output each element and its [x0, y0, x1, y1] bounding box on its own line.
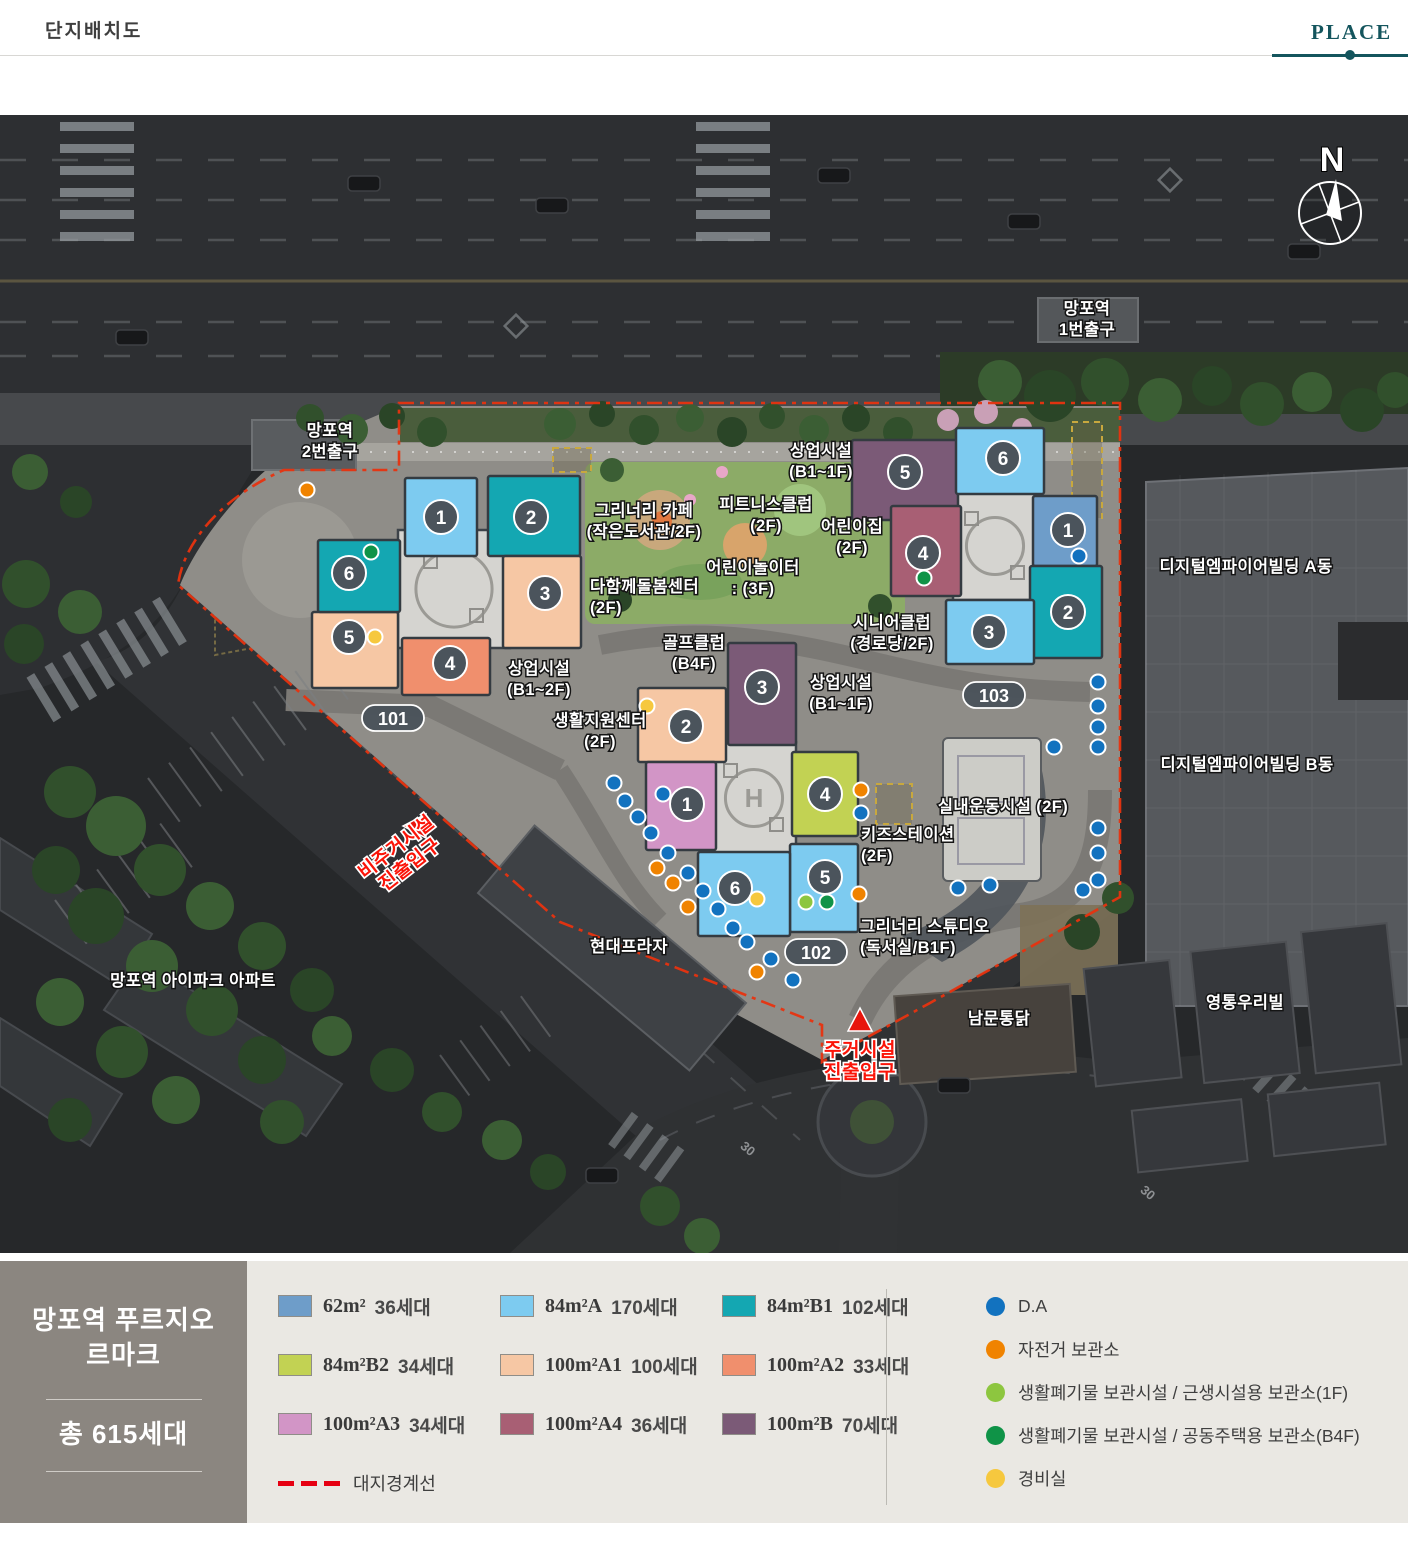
tree	[1081, 358, 1129, 406]
building-badge-label: 102	[801, 943, 831, 963]
unit-type-legend-item: 62m²36세대	[278, 1294, 431, 1318]
unit-type-count: 100세대	[631, 1352, 698, 1379]
tree	[134, 844, 186, 896]
site-plan-map: H 123456321456564123 101102103 망포역2번출구망포…	[0, 115, 1408, 1253]
unit-type-size: 100m²A1	[545, 1354, 622, 1377]
map-label: 실내운동시설 (2F)	[938, 797, 1068, 816]
tree	[799, 415, 829, 445]
tree	[370, 1048, 414, 1092]
boundary-dash	[324, 1481, 340, 1486]
unit-type-count: 102세대	[842, 1293, 909, 1320]
unit-number: 5	[344, 628, 355, 649]
unit-number: 1	[1063, 521, 1074, 542]
header-accent-dot	[1345, 50, 1355, 60]
facility-dot-y	[368, 630, 383, 645]
car	[938, 1078, 970, 1093]
facility-dot-b	[696, 884, 711, 899]
tree	[530, 1154, 566, 1190]
facility-dot-b	[764, 952, 779, 967]
marker-legend-item: 경비실	[986, 1467, 1066, 1489]
tree	[417, 417, 447, 447]
unit-number: 4	[820, 785, 831, 806]
tree	[422, 1092, 462, 1132]
facility-dot-b	[1091, 846, 1106, 861]
car	[1008, 214, 1040, 229]
facility-dot-dg	[364, 545, 379, 560]
marker-label: 자전거 보관소	[1018, 1337, 1119, 1362]
unit-number: 1	[682, 795, 693, 816]
facility-dot-b	[1072, 549, 1087, 564]
facility-dot-b	[607, 776, 622, 791]
boundary-legend-item: 대지경계선	[278, 1473, 436, 1493]
marker-legend-item: D.A	[986, 1295, 1047, 1317]
facility-dot-b	[786, 973, 801, 988]
unit-number: 3	[540, 584, 551, 605]
unit-number: 2	[1063, 603, 1074, 624]
tree	[48, 1098, 92, 1142]
page-title: 단지배치도	[45, 16, 142, 43]
unit-type-legend-item: 100m²A1100세대	[500, 1353, 698, 1377]
tab-place[interactable]: PLACE	[1311, 20, 1392, 45]
marker-label: 경비실	[1018, 1466, 1066, 1491]
unit-type-swatch	[278, 1354, 312, 1376]
top-road	[0, 115, 1408, 393]
tree	[1138, 378, 1182, 422]
map-label: 디지털엠파이어빌딩 A동	[1159, 557, 1332, 576]
facility-dot-o	[681, 900, 696, 915]
tree	[640, 1186, 680, 1226]
facility-dot-y	[750, 892, 765, 907]
unit-type-count: 34세대	[398, 1352, 454, 1379]
boundary-dash	[301, 1481, 317, 1486]
project-total-units: 총 615세대	[0, 1414, 247, 1451]
map-label: 디지털엠파이어빌딩 B동	[1160, 755, 1333, 774]
tree	[68, 888, 124, 944]
tree	[684, 1218, 720, 1253]
unit-type-legend-item: 84m²B1102세대	[722, 1294, 909, 1318]
tree	[2, 560, 50, 608]
unit-type-size: 100m²A2	[767, 1354, 844, 1377]
unit-type-count: 36세대	[375, 1293, 431, 1320]
tree	[238, 1036, 286, 1084]
tree	[759, 403, 785, 429]
facility-dot-b	[1091, 873, 1106, 888]
unit-type-swatch	[500, 1295, 534, 1317]
facility-dot-b	[644, 826, 659, 841]
unit-number: 4	[445, 654, 456, 675]
facility-dot-b	[656, 787, 671, 802]
tree	[544, 408, 576, 440]
marker-label: D.A	[1018, 1296, 1047, 1317]
tree	[12, 454, 48, 490]
unit-number: 5	[900, 463, 911, 484]
unit-type-size: 84m²B1	[767, 1295, 833, 1318]
facility-dot-b	[661, 846, 676, 861]
facility-dot-b	[740, 935, 755, 950]
car	[586, 1168, 618, 1183]
unit-number: 6	[730, 879, 741, 900]
tree	[842, 404, 870, 432]
marker-dot-icon	[986, 1469, 1005, 1488]
facility-dot-o	[666, 876, 681, 891]
building-badge-label: 101	[378, 709, 408, 729]
helipad-h: H	[745, 783, 764, 813]
tree	[978, 360, 1022, 404]
unit-type-swatch	[722, 1354, 756, 1376]
unit-number: 4	[918, 544, 929, 565]
map-label: 현대프라자	[590, 937, 668, 956]
facility-dot-o	[650, 861, 665, 876]
unit-number: 3	[757, 678, 768, 699]
facility-dot-b	[1091, 740, 1106, 755]
tree	[86, 796, 146, 856]
unit-type-swatch	[722, 1295, 756, 1317]
header: 단지배치도 PLACE	[0, 0, 1408, 115]
unit-type-count: 33세대	[853, 1352, 909, 1379]
marker-label: 생활폐기물 보관시설 / 근생시설용 보관소(1F)	[1018, 1380, 1348, 1405]
tree	[58, 590, 102, 634]
marker-legend-item: 생활폐기물 보관시설 / 근생시설용 보관소(1F)	[986, 1381, 1348, 1403]
unit-type-legend-item: 100m²B70세대	[722, 1412, 898, 1436]
tree	[32, 846, 80, 894]
unit-number: 1	[436, 508, 447, 529]
marker-dot-icon	[986, 1383, 1005, 1402]
tree	[1340, 388, 1384, 432]
facility-dot-o	[854, 783, 869, 798]
site-plan-svg: H 123456321456564123 101102103 망포역2번출구망포…	[0, 115, 1408, 1253]
marker-dot-icon	[986, 1426, 1005, 1445]
project-info-box: 망포역 푸르지오 르마크 총 615세대	[0, 1261, 247, 1523]
tree	[4, 624, 44, 664]
unit-number: 5	[820, 868, 831, 889]
facility-dot-b	[1091, 675, 1106, 690]
unit-type-count: 36세대	[631, 1411, 687, 1438]
unit-type-legend-item: 100m²A334세대	[278, 1412, 465, 1436]
tree	[290, 968, 334, 1012]
tree	[482, 1120, 522, 1160]
facility-dot-o	[750, 965, 765, 980]
facility-dot-b	[951, 881, 966, 896]
facility-dot-b	[1091, 821, 1106, 836]
map-label: 영통우리빌	[1206, 993, 1284, 1012]
facility-dot-dg	[820, 895, 835, 910]
facility-dot-dg	[917, 571, 932, 586]
facility-dot-b	[1047, 740, 1062, 755]
unit-type-count: 70세대	[842, 1411, 898, 1438]
marker-label: 생활폐기물 보관시설 / 공동주택용 보관소(B4F)	[1018, 1423, 1360, 1448]
boundary-dash	[278, 1481, 294, 1486]
building-badge-label: 103	[979, 686, 1009, 706]
unit-number: 6	[344, 564, 355, 585]
unit-type-legend-item: 100m²A436세대	[500, 1412, 687, 1436]
facility-dot-b	[854, 806, 869, 821]
car	[818, 168, 850, 183]
divider	[46, 1471, 202, 1472]
facility-dot-o	[852, 887, 867, 902]
facility-dot-o	[300, 483, 315, 498]
unit-number: 2	[681, 717, 692, 738]
facility-dot-lg	[799, 895, 814, 910]
tree	[1024, 370, 1076, 422]
facility-dot-b	[711, 902, 726, 917]
unit-type-swatch	[722, 1413, 756, 1435]
boundary-legend-label: 대지경계선	[353, 1470, 436, 1496]
project-name: 망포역 푸르지오 르마크	[0, 1303, 247, 1373]
map-label: 망포역 아이파크 아파트	[110, 971, 276, 990]
facility-dot-b	[681, 866, 696, 881]
unit-type-size: 62m²	[323, 1295, 366, 1318]
tree	[589, 401, 615, 427]
car	[348, 176, 380, 191]
unit-type-swatch	[278, 1413, 312, 1435]
tree	[1240, 382, 1284, 426]
facility-dot-b	[1091, 699, 1106, 714]
legend: 망포역 푸르지오 르마크 총 615세대 62m²36세대84m²A170세대8…	[0, 1261, 1408, 1523]
facility-dot-b	[983, 878, 998, 893]
tree	[186, 984, 238, 1036]
unit-type-swatch	[500, 1413, 534, 1435]
unit-type-size: 84m²A	[545, 1295, 602, 1318]
tree	[238, 922, 286, 970]
unit-number: 2	[526, 508, 537, 529]
marker-dot-icon	[986, 1297, 1005, 1316]
tree	[717, 417, 747, 447]
nammun-building	[894, 984, 1076, 1084]
unit-type-swatch	[278, 1295, 312, 1317]
unit-type-count: 34세대	[409, 1411, 465, 1438]
marker-legend-item: 생활폐기물 보관시설 / 공동주택용 보관소(B4F)	[986, 1424, 1360, 1446]
unit-number: 6	[998, 449, 1009, 470]
unit-type-size: 100m²A3	[323, 1413, 400, 1436]
unit-type-swatch	[500, 1354, 534, 1376]
facility-dot-b	[631, 810, 646, 825]
tree	[312, 1016, 352, 1056]
compass-north-label: N	[1320, 141, 1345, 179]
tree	[186, 882, 234, 930]
header-accent-line	[1272, 54, 1408, 57]
divider	[46, 1399, 202, 1400]
map-label: 남문통닭	[968, 1009, 1030, 1028]
tree	[44, 766, 96, 818]
facility-dot-b	[618, 794, 633, 809]
tree	[1292, 372, 1332, 412]
car	[536, 198, 568, 213]
facility-dot-b	[1091, 720, 1106, 735]
tree	[1064, 914, 1100, 950]
tree	[36, 978, 84, 1026]
tree	[260, 1100, 304, 1144]
marker-dot-icon	[986, 1340, 1005, 1359]
tree	[379, 403, 405, 429]
facility-dot-b	[1076, 883, 1091, 898]
marker-legend-item: 자전거 보관소	[986, 1338, 1119, 1360]
header-divider	[0, 55, 1408, 56]
unit-type-size: 100m²B	[767, 1413, 833, 1436]
unit-type-size: 100m²A4	[545, 1413, 622, 1436]
tree	[152, 1076, 200, 1124]
car	[116, 330, 148, 345]
unit-type-legend-item: 84m²A170세대	[500, 1294, 678, 1318]
tree	[676, 404, 704, 432]
car	[1288, 244, 1320, 259]
unit-type-count: 170세대	[611, 1293, 678, 1320]
tree	[629, 415, 659, 445]
page: 단지배치도 PLACE	[0, 0, 1408, 1547]
legend-divider	[886, 1289, 887, 1505]
unit-type-size: 84m²B2	[323, 1354, 389, 1377]
unit-number: 3	[984, 623, 995, 644]
tree	[60, 486, 92, 518]
facility-dot-b	[726, 921, 741, 936]
tree	[96, 1026, 148, 1078]
tree	[1192, 366, 1232, 406]
unit-type-legend-item: 84m²B234세대	[278, 1353, 454, 1377]
unit-type-legend-item: 100m²A233세대	[722, 1353, 909, 1377]
tree	[600, 458, 624, 482]
